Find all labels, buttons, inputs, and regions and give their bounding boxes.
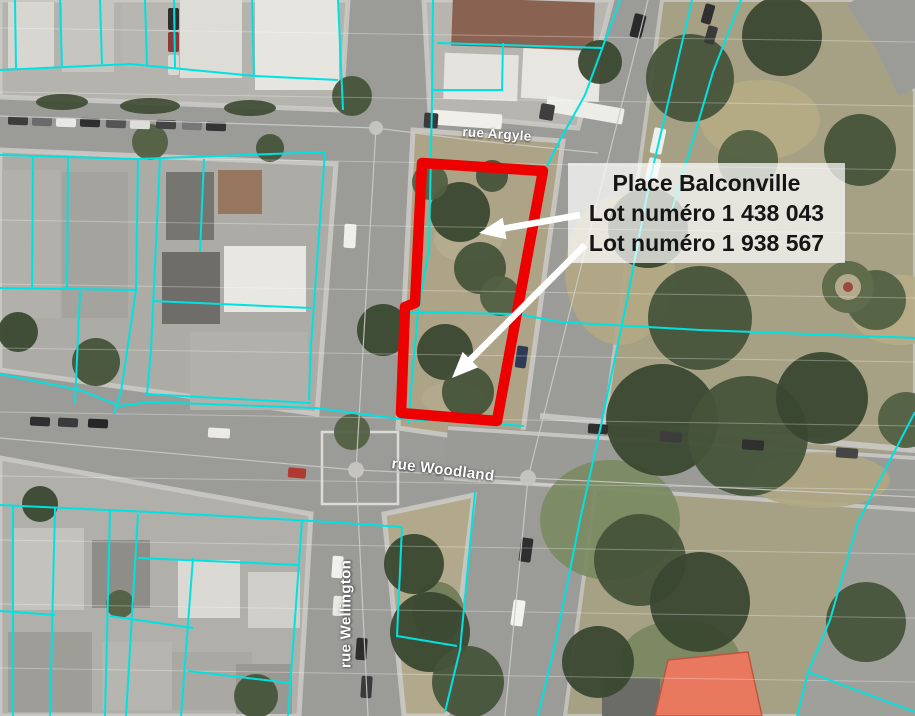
building — [248, 572, 300, 628]
map-viewport[interactable]: rue Argyle rue Woodland rue Wellington P… — [0, 0, 915, 716]
parked-vehicle — [539, 103, 556, 121]
parked-vehicle — [660, 431, 683, 443]
building — [178, 560, 240, 618]
centerline-node — [348, 462, 364, 478]
parked-vehicle — [331, 556, 344, 579]
building — [102, 642, 172, 710]
building — [451, 0, 595, 50]
parked-vehicle — [343, 224, 356, 249]
parked-vehicle — [168, 55, 179, 75]
tree-canopy — [384, 534, 444, 594]
annotation-lot-number-2: Lot numéro 1 938 567 — [589, 228, 824, 258]
tree-canopy — [650, 552, 750, 652]
tree-canopy — [132, 124, 168, 160]
parked-vehicle — [58, 417, 78, 427]
centerline-node — [369, 121, 383, 135]
annotation-lot-number-1: Lot numéro 1 438 043 — [589, 198, 824, 228]
building — [224, 246, 306, 312]
building — [180, 0, 242, 78]
parked-vehicle — [288, 467, 307, 479]
building — [218, 170, 262, 214]
parked-vehicle — [836, 447, 859, 459]
building — [62, 172, 128, 318]
tree-canopy — [22, 486, 58, 522]
ground-patch — [224, 100, 276, 116]
building — [62, 0, 114, 72]
parked-vehicle — [742, 439, 765, 451]
parked-vehicle — [168, 32, 179, 52]
annotation-box: Place Balconville Lot numéro 1 438 043 L… — [568, 163, 845, 263]
tree-canopy — [776, 352, 868, 444]
parcel-line — [32, 156, 33, 288]
annotation-title: Place Balconville — [613, 168, 801, 198]
ground-patch — [120, 98, 180, 114]
parcel-line — [502, 43, 503, 90]
tree-canopy — [72, 338, 120, 386]
parked-vehicle — [332, 596, 344, 617]
monument-center — [843, 282, 853, 292]
tree-canopy — [442, 366, 494, 418]
tree-canopy — [562, 626, 634, 698]
building — [2, 170, 60, 318]
building — [443, 53, 519, 102]
building — [166, 172, 214, 240]
tree-canopy — [256, 134, 284, 162]
ground-patch — [36, 94, 88, 110]
centerline-node — [520, 470, 536, 486]
parcel-line — [67, 156, 68, 288]
building — [162, 252, 220, 324]
parked-vehicle — [88, 418, 108, 428]
tree-canopy — [332, 76, 372, 116]
tree-canopy — [646, 34, 734, 122]
parked-vehicle — [208, 427, 230, 438]
parked-vehicle — [56, 118, 76, 128]
tree-canopy — [648, 266, 752, 370]
parcel-line — [174, 0, 175, 68]
red-roof-building — [655, 652, 762, 716]
parcel-line — [15, 0, 16, 68]
tree-canopy — [106, 590, 134, 618]
parked-vehicle — [355, 638, 368, 661]
tree-canopy — [432, 646, 504, 716]
tree-canopy — [334, 414, 370, 450]
parked-vehicle — [30, 416, 50, 426]
parked-vehicle — [588, 423, 609, 434]
map-canvas — [0, 0, 915, 716]
